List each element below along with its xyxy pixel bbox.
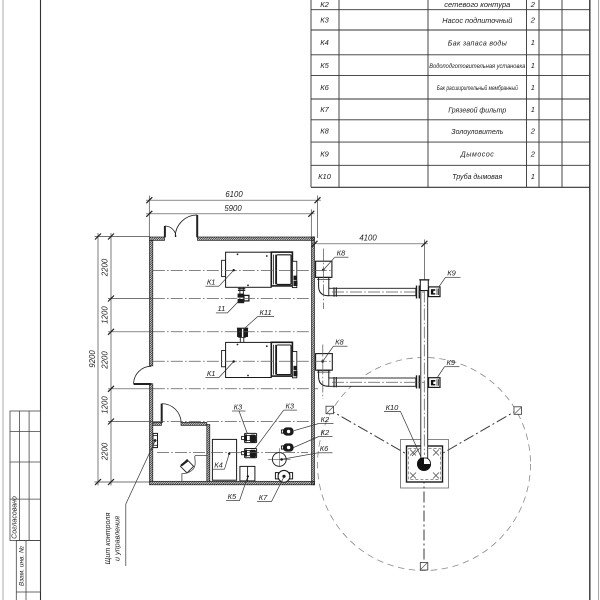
svg-text:К10: К10 (318, 172, 332, 181)
svg-text:К2: К2 (321, 428, 330, 437)
svg-text:Бак запаса воды: Бак запаса воды (448, 39, 508, 47)
svg-text:1200: 1200 (101, 306, 110, 324)
svg-text:и управления: и управления (113, 516, 122, 561)
svg-text:К4: К4 (320, 38, 329, 47)
svg-text:11: 11 (218, 304, 226, 313)
svg-text:2: 2 (530, 16, 536, 25)
svg-text:2200: 2200 (101, 442, 110, 461)
svg-text:Бак расширительный мембранный: Бак расширительный мембранный (437, 85, 518, 92)
svg-text:К4: К4 (214, 461, 223, 470)
svg-text:сетевого контура: сетевого контура (444, 2, 510, 9)
svg-text:5900: 5900 (224, 204, 242, 213)
svg-text:К9: К9 (447, 358, 456, 367)
svg-text:1: 1 (531, 83, 535, 92)
svg-text:К5: К5 (320, 61, 329, 70)
svg-text:К3: К3 (234, 402, 243, 411)
svg-text:2200: 2200 (101, 351, 110, 370)
svg-text:Золоуловитель: Золоуловитель (451, 129, 503, 136)
svg-text:К8: К8 (337, 249, 346, 258)
svg-text:6100: 6100 (225, 190, 243, 199)
svg-text:К10: К10 (386, 403, 400, 412)
svg-text:К5: К5 (228, 492, 237, 501)
svg-text:2200: 2200 (101, 258, 110, 277)
svg-text:К2: К2 (320, 0, 329, 9)
svg-text:4100: 4100 (359, 233, 377, 242)
svg-text:К1: К1 (207, 278, 216, 287)
svg-text:Насос подпиточный: Насос подпиточный (442, 17, 512, 25)
svg-text:К1: К1 (207, 369, 216, 378)
svg-text:К8: К8 (320, 127, 329, 136)
svg-text:Дымосос: Дымосос (460, 152, 495, 159)
svg-text:9200: 9200 (88, 350, 97, 368)
svg-text:К11: К11 (260, 308, 272, 317)
svg-text:Грязевой фильтр: Грязевой фильтр (448, 106, 506, 114)
svg-text:1: 1 (531, 172, 535, 181)
svg-text:К9: К9 (320, 150, 329, 159)
svg-text:1: 1 (531, 105, 535, 114)
svg-text:Труба дымовая: Труба дымовая (452, 173, 502, 181)
svg-text:К3: К3 (320, 16, 329, 25)
svg-text:1200: 1200 (101, 396, 110, 414)
svg-text:2: 2 (530, 0, 536, 9)
svg-text:Водоподготовительная установка: Водоподготовительная установка (429, 63, 526, 70)
svg-text:К9: К9 (447, 268, 456, 277)
svg-text:К7: К7 (259, 493, 268, 502)
svg-text:Согласовано: Согласовано (12, 496, 19, 539)
svg-text:2: 2 (530, 150, 536, 159)
svg-text:К2: К2 (321, 415, 330, 424)
svg-text:К3: К3 (286, 401, 295, 410)
svg-text:К6: К6 (320, 444, 329, 453)
svg-text:К7: К7 (320, 105, 329, 114)
svg-text:Щит контроля: Щит контроля (103, 513, 112, 565)
svg-text:1: 1 (531, 38, 535, 47)
svg-text:К6: К6 (320, 83, 329, 92)
svg-text:2: 2 (530, 127, 536, 136)
svg-text:К8: К8 (335, 338, 344, 347)
svg-text:1: 1 (531, 61, 535, 70)
svg-text:Взам. инв. №: Взам. инв. № (19, 546, 26, 586)
